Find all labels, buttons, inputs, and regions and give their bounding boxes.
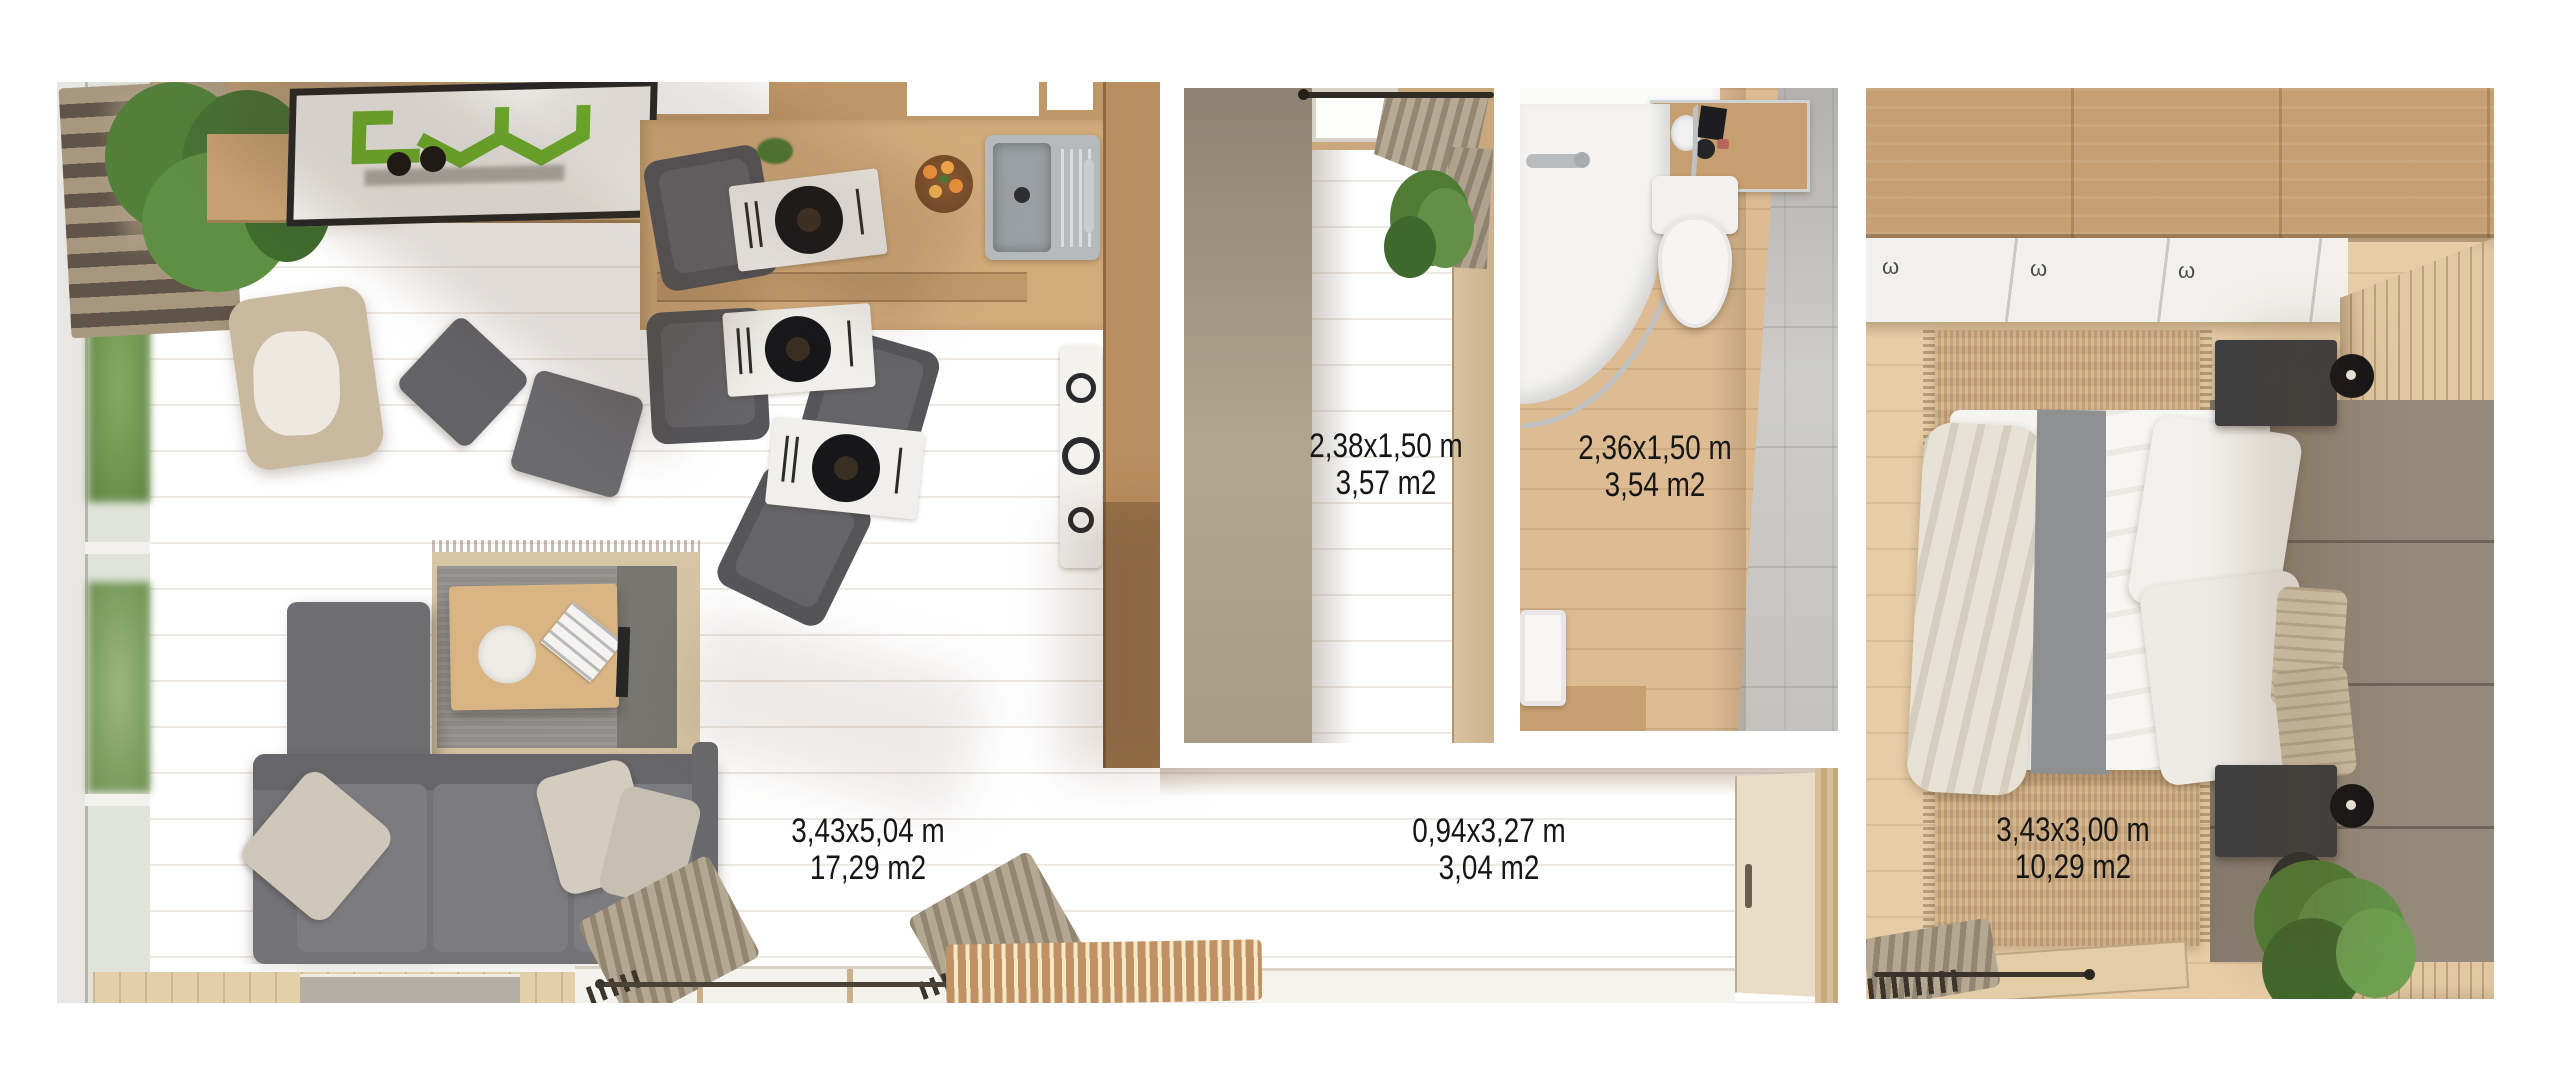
room-dimensions: 2,36x1,50 m: [1578, 430, 1731, 467]
induction-hob: [1060, 345, 1102, 568]
fruit: [949, 179, 963, 193]
fruit: [929, 185, 942, 198]
cutlery-icon: [856, 189, 865, 235]
cutlery-icon: [744, 202, 753, 248]
wall-lamp: [2330, 784, 2374, 828]
coffee-table: [449, 584, 619, 711]
dining-placemat: [765, 416, 925, 519]
knob: [420, 146, 446, 172]
shower-head: [1574, 152, 1590, 168]
dinner-plate: [763, 314, 833, 384]
bedroom-top-wall: [1866, 88, 2494, 238]
rod-finial: [1298, 89, 1309, 100]
throw-blanket: [252, 330, 342, 437]
bathroom-sink: [1520, 610, 1566, 706]
deck-mat: [300, 974, 520, 1003]
plate-food: [785, 336, 811, 362]
door-handle: [1745, 864, 1752, 908]
hallway-panel: 2,38x1,50 m 3,57 m2: [1184, 88, 1494, 743]
draped-sheet: [1905, 421, 2044, 797]
room-dimensions: 2,38x1,50 m: [1309, 428, 1462, 465]
fruit: [941, 161, 954, 174]
fruit-bowl: [915, 155, 973, 213]
sink-drain: [1014, 187, 1030, 203]
potted-plant: [2336, 908, 2416, 998]
dining-placemat: [728, 168, 887, 272]
wall-lamp: [2330, 354, 2374, 398]
room-label-corridor: 0,94x3,27 m 3,04 m2: [1412, 813, 1565, 887]
room-dimensions: 0,94x3,27 m: [1412, 813, 1565, 850]
rod-finial: [2084, 969, 2095, 980]
room-dimensions: 3,43x5,04 m: [791, 813, 944, 850]
nightstand: [2215, 340, 2337, 426]
room-area: 3,54 m2: [1578, 467, 1731, 504]
ceiling-hook-icon: ω: [2030, 256, 2047, 282]
lounge-chair: [226, 283, 387, 473]
cutlery-icon: [847, 320, 853, 366]
lamp-bulb: [2346, 370, 2356, 380]
room-area: 3,04 m2: [1412, 850, 1565, 887]
skylight: [1047, 82, 1093, 110]
table-plant-sprig: [757, 138, 793, 164]
serving-tray: [478, 625, 537, 684]
burner-ring: [1068, 507, 1094, 533]
cutlery-icon: [791, 437, 799, 483]
room-area: 17,29 m2: [791, 850, 944, 887]
cutlery-icon: [781, 436, 789, 482]
floorplan-render: 3,43x5,04 m 17,29 m2 0,94x3,27 m 3,04 m2…: [0, 0, 2560, 1088]
kitchen-sink: [985, 135, 1100, 260]
lamp-bulb: [2346, 800, 2356, 810]
cutlery-icon: [895, 448, 903, 494]
ottoman: [395, 314, 531, 450]
dinner-plate: [771, 182, 847, 258]
garden-view: [88, 582, 150, 792]
faucet: [1084, 159, 1094, 233]
magazine: [541, 602, 623, 683]
nightstand: [2215, 765, 2337, 857]
hallway-left-wall: [1184, 88, 1312, 743]
window-mullion: [85, 794, 150, 806]
potted-plant: [1384, 216, 1436, 278]
knob: [387, 152, 411, 176]
rod-finial: [595, 979, 605, 989]
wall-floor-shadow: [1312, 88, 1354, 743]
fruit: [923, 165, 937, 179]
ceiling-band: ω ω ω: [1866, 238, 2348, 322]
accent-pillow: [2272, 664, 2357, 781]
room-label-living: 3,43x5,04 m 17,29 m2: [791, 813, 944, 887]
room-label-bathroom: 2,36x1,50 m 3,54 m2: [1578, 430, 1731, 504]
door-frame: [1815, 765, 1838, 1003]
curtain-rod: [1874, 972, 2090, 977]
curtain-rod: [1304, 92, 1494, 98]
corridor-door: [1735, 772, 1819, 997]
plate-food: [833, 455, 859, 481]
ottoman: [509, 369, 645, 500]
black-box: [1697, 105, 1727, 140]
skylight: [649, 82, 769, 114]
room-dimensions: 3,43x3,00 m: [1996, 812, 2149, 849]
brand-logo-icon: [330, 92, 602, 173]
cutlery-icon: [746, 327, 752, 373]
burner-ring: [1066, 373, 1096, 403]
doormat: [286, 82, 657, 227]
room-area: 3,57 m2: [1309, 465, 1462, 502]
dinner-plate: [809, 431, 884, 506]
cutlery-icon: [736, 328, 742, 374]
cutlery-icon: [754, 201, 763, 247]
folded-blanket: [2031, 409, 2115, 774]
corridor-glass-wall: [1262, 968, 1735, 1003]
window-mullion: [85, 542, 150, 554]
cosmetic-item: [1717, 139, 1729, 149]
ceiling-hook-icon: ω: [1882, 254, 1899, 280]
ceiling-hook-icon: ω: [2178, 258, 2195, 284]
room-label-bedroom: 3,43x3,00 m 10,29 m2: [1996, 812, 2149, 886]
fruit-leaf: [939, 175, 949, 183]
skylight: [907, 82, 1039, 116]
room-area: 10,29 m2: [1996, 849, 2149, 886]
room-label-hallway: 2,38x1,50 m 3,57 m2: [1309, 428, 1462, 502]
black-jar: [1695, 139, 1715, 159]
burner-ring: [1062, 437, 1100, 475]
dining-placemat: [722, 303, 875, 397]
remote: [616, 627, 630, 697]
bedroom-panel: ω ω ω: [1866, 88, 2494, 999]
bathroom-panel: 2,36x1,50 m 3,54 m2: [1520, 88, 1838, 731]
slat-deck: [945, 939, 1262, 1003]
interior-wall-shade: [1103, 502, 1160, 768]
plate-food: [796, 207, 823, 234]
